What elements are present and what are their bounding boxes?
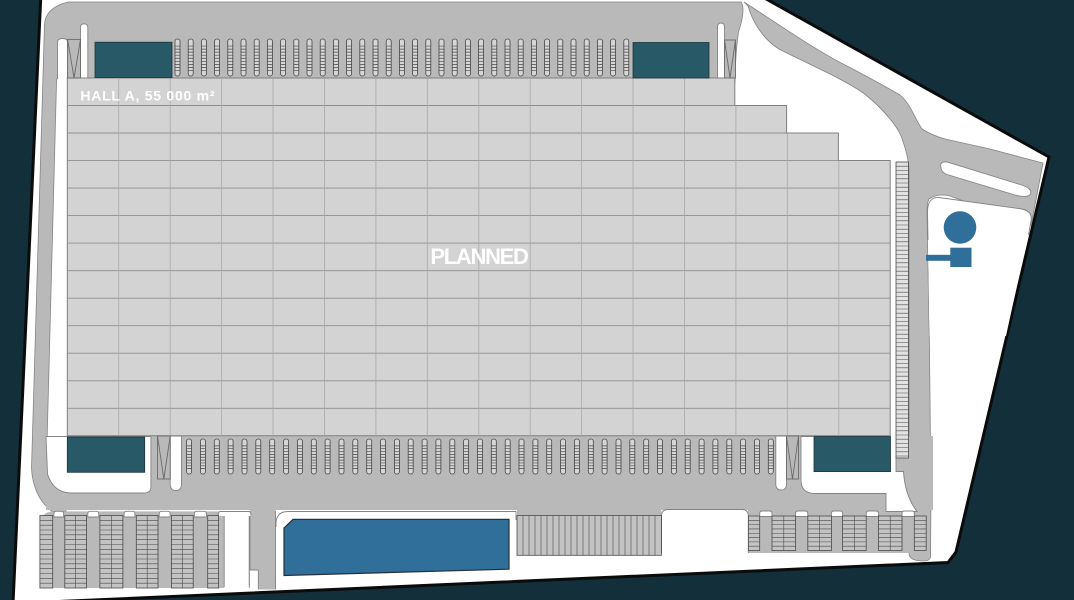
svg-text:HALL A, 55 000 m²: HALL A, 55 000 m² bbox=[80, 88, 215, 104]
svg-text:PLANNED: PLANNED bbox=[430, 244, 528, 269]
